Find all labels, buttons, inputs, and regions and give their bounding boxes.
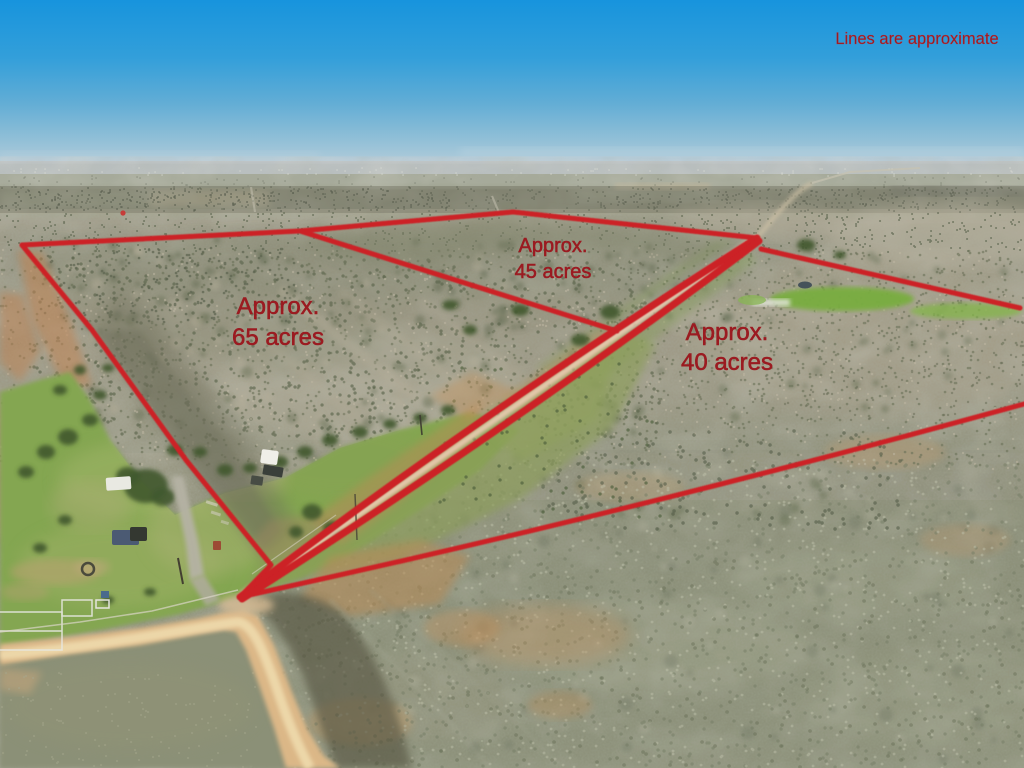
svg-text:Approx.: Approx. — [686, 319, 769, 346]
svg-text:65 acres: 65 acres — [232, 324, 324, 351]
svg-text:40 acres: 40 acres — [681, 349, 773, 376]
svg-text:Lines are approximate: Lines are approximate — [835, 30, 998, 48]
svg-text:45 acres: 45 acres — [515, 261, 592, 283]
svg-text:Approx.: Approx. — [237, 293, 320, 320]
svg-text:Approx.: Approx. — [519, 235, 588, 257]
